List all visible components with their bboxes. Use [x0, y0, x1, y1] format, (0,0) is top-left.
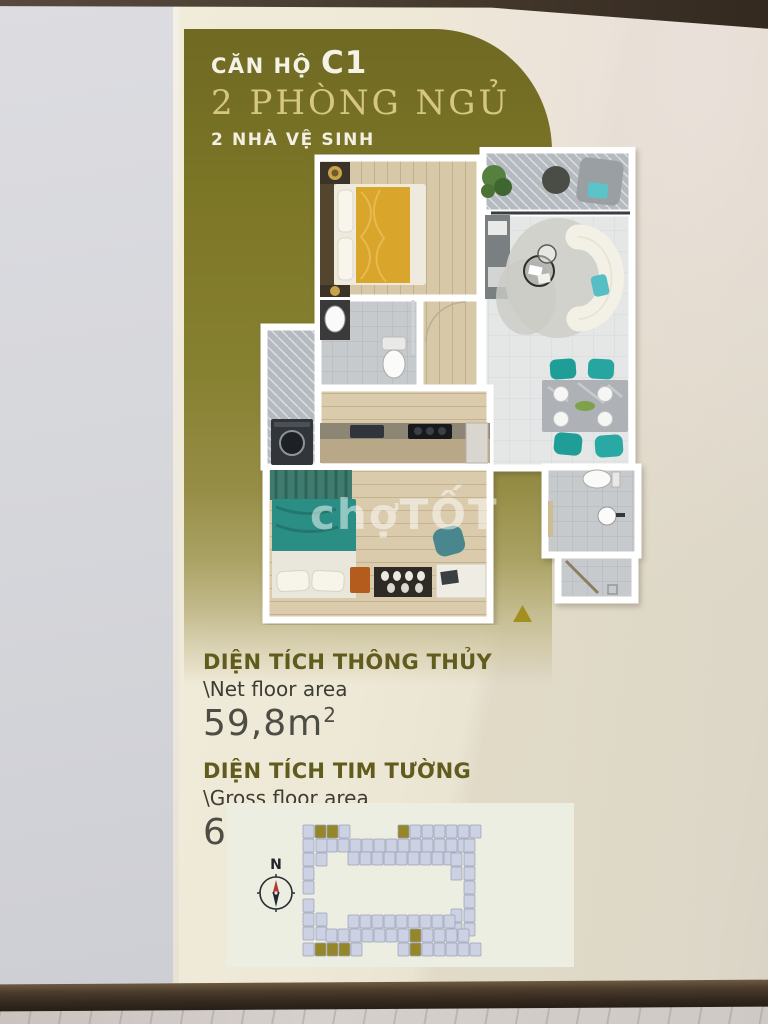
site-unit	[434, 825, 445, 838]
site-unit-highlighted	[339, 943, 350, 956]
site-unit	[434, 943, 445, 956]
net-area-value: 59,8m2	[203, 703, 492, 744]
site-unit	[446, 839, 457, 852]
site-unit	[348, 852, 359, 865]
site-unit	[339, 825, 350, 838]
site-unit	[338, 929, 349, 942]
background-wall	[0, 0, 200, 1024]
site-unit-highlighted	[315, 943, 326, 956]
site-plan: N	[226, 803, 574, 967]
site-unit	[446, 943, 457, 956]
site-unit	[432, 915, 443, 928]
site-unit	[360, 915, 371, 928]
site-unit	[316, 927, 327, 940]
display-board: CĂN HỘ C1 2 PHÒNG NGỦ 2 NHÀ VỆ SINH	[178, 5, 768, 983]
site-unit	[303, 899, 314, 912]
site-unit	[362, 839, 373, 852]
site-unit	[408, 852, 419, 865]
site-unit	[303, 913, 314, 926]
site-unit	[374, 929, 385, 942]
site-unit	[464, 895, 475, 908]
site-unit	[464, 867, 475, 880]
site-unit	[372, 915, 383, 928]
site-unit	[410, 825, 421, 838]
site-unit-highlighted	[410, 929, 421, 942]
site-unit	[458, 929, 469, 942]
site-unit	[410, 839, 421, 852]
site-unit-highlighted	[327, 943, 338, 956]
site-unit	[316, 839, 327, 852]
compass-north-label: N	[270, 857, 282, 873]
site-unit	[408, 915, 419, 928]
site-unit	[303, 943, 314, 956]
kitchen-counter	[320, 423, 490, 463]
site-unit	[420, 915, 431, 928]
site-unit	[350, 839, 361, 852]
site-unit	[470, 943, 481, 956]
site-unit	[446, 825, 457, 838]
room-hallway	[420, 298, 480, 388]
site-unit	[326, 839, 337, 852]
site-unit-highlighted	[398, 825, 409, 838]
site-unit	[444, 915, 455, 928]
site-unit	[338, 839, 349, 852]
unit-label: CĂN HỘ	[211, 54, 312, 78]
site-unit-highlighted	[410, 943, 421, 956]
site-unit	[422, 929, 433, 942]
washing-machine	[271, 419, 313, 465]
site-unit	[458, 825, 469, 838]
site-unit	[348, 915, 359, 928]
site-unit-highlighted	[315, 825, 326, 838]
site-unit	[316, 853, 327, 866]
site-unit	[451, 867, 462, 880]
site-unit	[458, 943, 469, 956]
site-unit	[303, 825, 314, 838]
site-unit	[422, 943, 433, 956]
site-unit	[326, 929, 337, 942]
site-unit	[422, 825, 433, 838]
unit-code: C1	[321, 45, 367, 81]
site-unit	[303, 839, 314, 852]
site-unit	[396, 915, 407, 928]
site-unit	[464, 909, 475, 922]
site-unit	[398, 943, 409, 956]
site-unit	[451, 853, 462, 866]
board-edge-highlight	[173, 5, 179, 983]
unit-name-line: CĂN HỘ C1	[211, 45, 510, 81]
site-unit	[386, 839, 397, 852]
site-unit	[398, 839, 409, 852]
site-unit	[384, 852, 395, 865]
site-unit	[303, 853, 314, 866]
site-unit	[434, 839, 445, 852]
poster-photo: CĂN HỘ C1 2 PHÒNG NGỦ 2 NHÀ VỆ SINH	[0, 0, 768, 1024]
site-unit-highlighted	[327, 825, 338, 838]
site-unit	[446, 929, 457, 942]
site-unit	[303, 927, 314, 940]
site-unit	[432, 852, 443, 865]
site-unit	[303, 881, 314, 894]
site-unit	[386, 929, 397, 942]
site-unit	[374, 839, 385, 852]
site-unit	[384, 915, 395, 928]
net-area-item: DIỆN TÍCH THÔNG THỦY \Net floor area 59,…	[203, 650, 492, 744]
site-unit	[362, 929, 373, 942]
site-unit	[303, 867, 314, 880]
entry-arrow-marker	[513, 605, 532, 622]
site-unit	[464, 881, 475, 894]
chotot-watermark: chợTỐT	[310, 483, 499, 539]
site-unit	[372, 852, 383, 865]
net-area-label-vi: DIỆN TÍCH THÔNG THỦY	[203, 650, 492, 674]
net-area-label-en: \Net floor area	[203, 677, 492, 701]
site-unit	[470, 825, 481, 838]
unit-title-block: CĂN HỘ C1 2 PHÒNG NGỦ 2 NHÀ VỆ SINH	[211, 45, 510, 150]
site-unit	[351, 943, 362, 956]
site-unit	[464, 853, 475, 866]
site-unit	[396, 852, 407, 865]
site-unit	[398, 929, 409, 942]
floor-plan: chợTỐT	[258, 147, 658, 625]
site-unit	[420, 852, 431, 865]
site-unit	[350, 929, 361, 942]
site-unit	[360, 852, 371, 865]
gross-area-label-vi: DIỆN TÍCH TIM TƯỜNG	[203, 759, 492, 783]
site-unit	[422, 839, 433, 852]
site-unit	[316, 913, 327, 926]
site-unit	[464, 839, 475, 852]
site-unit	[434, 929, 445, 942]
bedrooms-line: 2 PHÒNG NGỦ	[211, 83, 510, 123]
board-bottom-frame	[0, 980, 768, 1012]
